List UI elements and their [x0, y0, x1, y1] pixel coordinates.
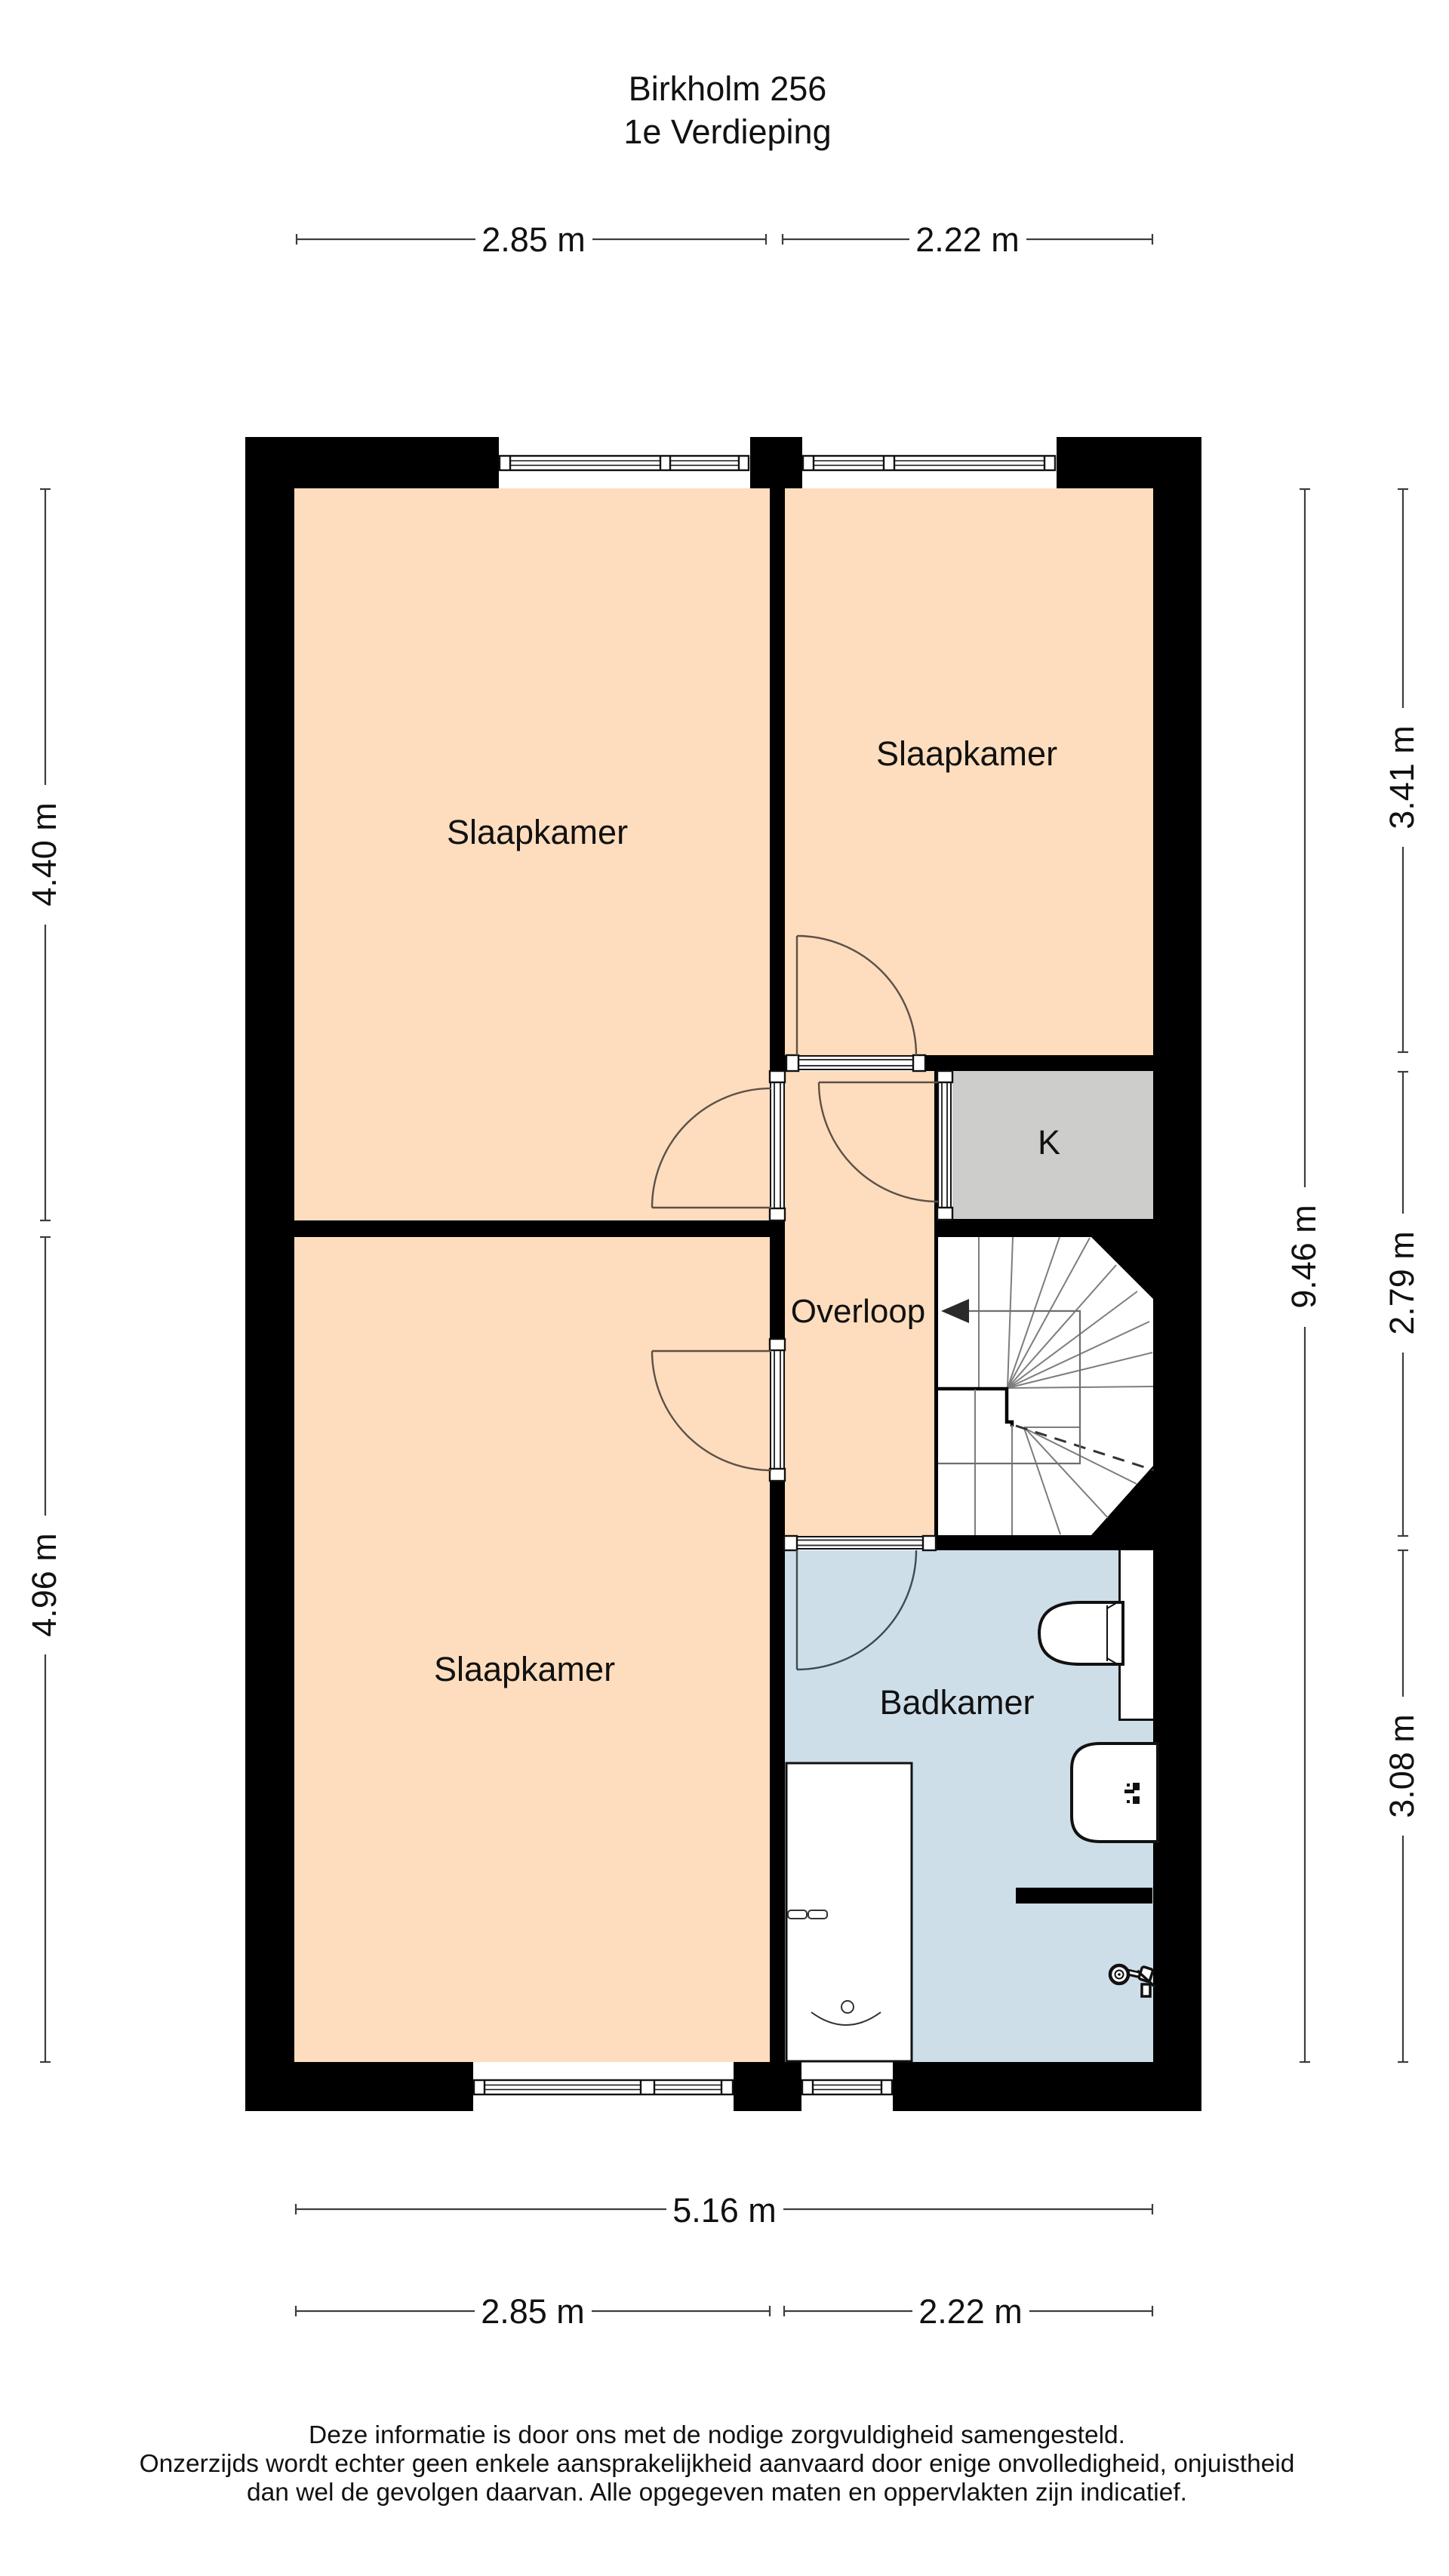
svg-text:2.85 m: 2.85 m — [481, 2292, 585, 2331]
svg-text:4.40 m: 4.40 m — [25, 802, 63, 906]
svg-text:dan wel de gevolgen daarvan. A: dan wel de gevolgen daarvan. Alle opgege… — [247, 2479, 1187, 2507]
svg-text:2.22 m: 2.22 m — [915, 220, 1020, 259]
svg-text:9.46 m: 9.46 m — [1284, 1205, 1323, 1309]
svg-text:K: K — [1038, 1123, 1060, 1162]
svg-text:3.41 m: 3.41 m — [1383, 725, 1421, 829]
svg-text:1e Verdieping: 1e Verdieping — [623, 112, 831, 151]
svg-text:5.16 m: 5.16 m — [672, 2191, 777, 2230]
svg-text:3.08 m: 3.08 m — [1383, 1714, 1421, 1818]
svg-text:Slaapkamer: Slaapkamer — [434, 1650, 615, 1688]
svg-text:4.96 m: 4.96 m — [25, 1533, 63, 1637]
svg-text:2.79 m: 2.79 m — [1383, 1231, 1421, 1335]
svg-text:2.85 m: 2.85 m — [481, 220, 586, 259]
svg-text:Slaapkamer: Slaapkamer — [447, 813, 628, 851]
svg-text:Overloop: Overloop — [791, 1293, 926, 1330]
svg-text:Birkholm 256: Birkholm 256 — [629, 69, 827, 108]
svg-text:Onzerzijds wordt echter geen e: Onzerzijds wordt echter geen enkele aans… — [140, 2450, 1295, 2478]
svg-text:Deze informatie is door ons me: Deze informatie is door ons met de nodig… — [309, 2421, 1125, 2449]
svg-text:Slaapkamer: Slaapkamer — [876, 734, 1057, 773]
svg-text:Badkamer: Badkamer — [879, 1683, 1034, 1722]
svg-text:2.22 m: 2.22 m — [918, 2292, 1023, 2331]
